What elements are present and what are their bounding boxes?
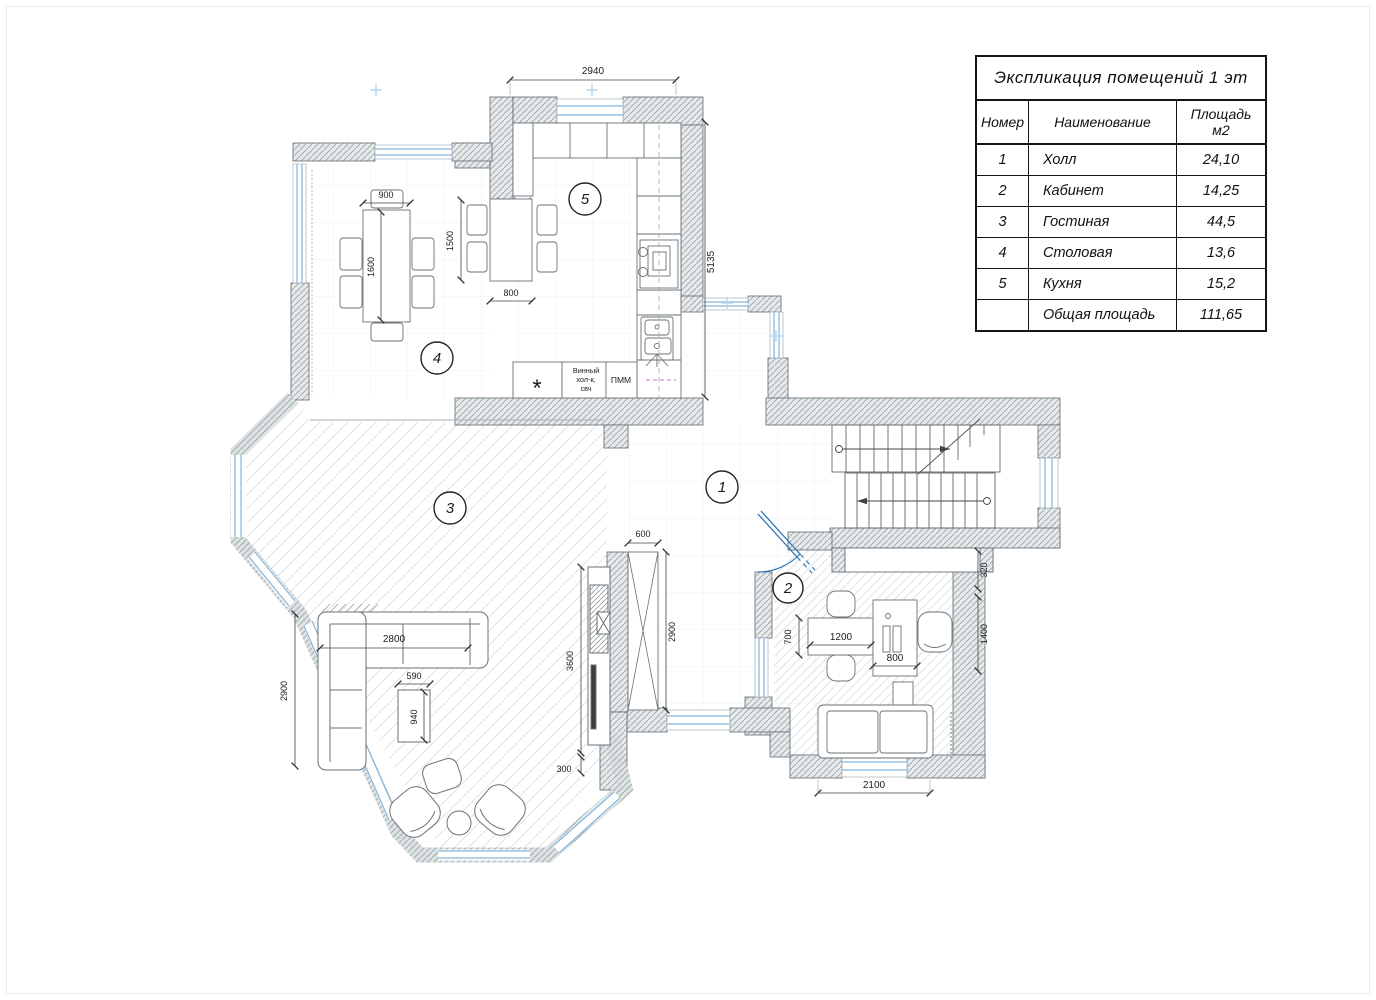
dim-800-desk: 800 <box>887 653 904 664</box>
dining-chair <box>412 276 434 308</box>
stove-icon <box>639 240 679 288</box>
wall-kitchen-entry-pier <box>490 97 513 205</box>
sofa-vertical <box>318 612 366 770</box>
room-number-kitchen: 5 <box>581 191 590 208</box>
dim-320: 320 <box>979 562 989 577</box>
wall-hall-top-corner <box>681 296 703 312</box>
dim-2900-sofa: 2900 <box>279 681 289 701</box>
header-area: Площадь м2 <box>1177 101 1265 143</box>
window-kitchen-top <box>557 99 623 123</box>
wall-stairs-right-a <box>1038 425 1060 458</box>
side-round-table <box>447 811 471 835</box>
dim-2900-closet: 2900 <box>667 622 677 642</box>
window-dining-top <box>375 145 452 159</box>
fridge-star-symbol: * <box>532 375 541 402</box>
wall-dining-top-left <box>293 143 375 161</box>
room-schedule-table: Экспликация помещений 1 эт Номер Наимено… <box>975 55 1267 332</box>
dim-2940: 2940 <box>582 66 605 77</box>
room-bubble-office: 2 <box>773 573 803 603</box>
office-chair <box>827 655 855 681</box>
wall-hall-bottom-left <box>627 708 667 732</box>
table-row: 3 Гостиная 44,5 <box>977 207 1265 238</box>
header-number: Номер <box>977 101 1029 143</box>
table-row: 2 Кабинет 14,25 <box>977 176 1265 207</box>
window-hall-top <box>703 298 748 310</box>
dim-800-bar: 800 <box>503 288 518 298</box>
table-row: 5 Кухня 15,2 <box>977 269 1265 300</box>
bar-chair <box>467 242 487 272</box>
dim-2800: 2800 <box>383 634 406 645</box>
dim-1200: 1200 <box>830 632 853 643</box>
window-bay-left <box>231 455 246 537</box>
window-stairs-right <box>1040 458 1058 508</box>
dining-chair <box>412 238 434 270</box>
window-hall-bottom <box>667 710 730 730</box>
staircase <box>832 419 1000 572</box>
table-row: 1 Холл 24,10 <box>977 145 1265 176</box>
wall-stairs-bottom <box>830 528 1060 548</box>
kitchen-sink-icon <box>641 317 673 367</box>
dim-590: 590 <box>406 671 421 681</box>
office-side-table <box>893 682 913 705</box>
office-sofa <box>818 705 933 758</box>
dining-chair <box>371 323 403 341</box>
bar-chair <box>537 242 557 272</box>
table-row: 4 Столовая 13,6 <box>977 238 1265 269</box>
room-schedule-title: Экспликация помещений 1 эт <box>977 57 1265 101</box>
dim-3600: 3600 <box>565 651 575 671</box>
window-bay-bottom <box>438 851 530 858</box>
room-number-office: 2 <box>783 580 793 597</box>
wall-stairs-top <box>766 398 1060 425</box>
dim-1500: 1500 <box>445 231 455 251</box>
floor-plan-sheet: * Винный хол-к, свч ПММ <box>0 0 1376 1000</box>
dim-1600: 1600 <box>366 257 376 277</box>
room-number-living: 3 <box>446 500 455 517</box>
wall-hall-bottom-right <box>730 708 790 732</box>
kitchen-tall-cabinet <box>513 123 533 196</box>
table-row-total: Общая площадь 111,65 <box>977 300 1265 330</box>
dishwasher-label: ПММ <box>611 375 631 385</box>
stairs-lower-flight <box>845 473 995 528</box>
dim-1400: 1400 <box>979 624 989 644</box>
window-office-bottom <box>842 756 907 777</box>
stairs-risers-lower <box>857 473 977 528</box>
wine-label-1: Винный <box>573 366 599 375</box>
window-dining-left <box>293 164 306 283</box>
room-number-dining: 4 <box>433 350 441 367</box>
office-desk-chair <box>918 612 952 652</box>
wall-mid-pier <box>604 425 628 448</box>
wall-office-left-pier <box>755 572 772 638</box>
room-bubble-dining: 4 <box>421 342 453 374</box>
dim-900: 900 <box>378 190 393 200</box>
room-bubble-hall: 1 <box>706 471 738 503</box>
wall-kitchen-top-right <box>623 97 703 125</box>
room-schedule-header: Номер Наименование Площадь м2 <box>977 101 1265 145</box>
wall-hall-right-pier <box>768 358 788 400</box>
dim-940: 940 <box>409 709 419 724</box>
dim-5135: 5135 <box>706 250 717 273</box>
wall-office-right <box>953 548 985 778</box>
hall-nook-floor <box>703 312 770 398</box>
stairs-risers-upper <box>846 419 984 474</box>
tv-icon <box>591 665 596 729</box>
office-chair <box>827 591 855 617</box>
window-office-left <box>755 638 768 697</box>
wall-hall-step <box>770 732 790 757</box>
dim-700: 700 <box>783 629 793 644</box>
wall-dining-top-right <box>452 143 492 161</box>
understairs-niche <box>832 548 993 572</box>
wall-kitchen-right <box>681 125 703 305</box>
wine-label-2: хол-к, <box>576 375 595 384</box>
fireplace-tv-unit <box>588 567 610 745</box>
hall-furniture <box>628 552 658 710</box>
room-number-hall: 1 <box>718 479 726 496</box>
dim-600: 600 <box>635 529 650 539</box>
wall-mid-band <box>455 398 703 425</box>
dining-chair <box>340 276 362 308</box>
header-name: Наименование <box>1029 101 1177 143</box>
wine-label-3: свч <box>581 384 592 393</box>
dining-chair <box>340 238 362 270</box>
wall-dining-left-pier <box>291 283 309 400</box>
bar-chair <box>467 205 487 235</box>
room-bubble-living: 3 <box>434 492 466 524</box>
bar-chair <box>537 205 557 235</box>
bar-table <box>490 199 532 281</box>
room-bubble-kitchen: 5 <box>569 183 601 215</box>
stairs-direction-arrows <box>836 446 991 505</box>
wall-hall-top-pier <box>748 296 781 312</box>
dim-2100: 2100 <box>863 780 886 791</box>
dim-300: 300 <box>556 764 571 774</box>
wall-kitchen-top-left <box>513 97 557 125</box>
